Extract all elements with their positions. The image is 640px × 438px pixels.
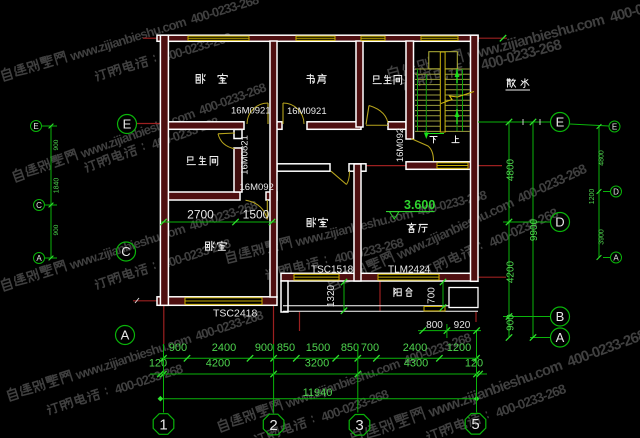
svg-text:1200: 1200 [447, 342, 471, 354]
svg-text:2: 2 [269, 417, 277, 434]
svg-text:E: E [123, 117, 132, 132]
svg-text:3900: 3900 [599, 229, 606, 245]
svg-text:3.600: 3.600 [404, 198, 435, 212]
svg-text:16M0921: 16M0921 [231, 106, 271, 117]
svg-text:C: C [36, 201, 42, 210]
svg-text:3200: 3200 [305, 358, 329, 370]
svg-text:900: 900 [506, 314, 517, 331]
svg-text:16M092: 16M092 [395, 128, 406, 162]
svg-text:1320: 1320 [326, 284, 337, 307]
svg-text:700: 700 [427, 287, 438, 304]
svg-text:TSC1518: TSC1518 [311, 265, 354, 276]
svg-text:920: 920 [454, 320, 471, 331]
svg-text:4800: 4800 [506, 158, 517, 181]
svg-text:2700: 2700 [187, 208, 214, 222]
svg-text:2400: 2400 [403, 342, 427, 354]
svg-text:16M0821: 16M0821 [240, 135, 251, 175]
svg-text:900: 900 [53, 139, 60, 150]
svg-text:4300: 4300 [404, 358, 428, 370]
svg-text:TLM2424: TLM2424 [388, 265, 431, 276]
svg-text:900: 900 [169, 342, 187, 354]
svg-text:4200: 4200 [506, 260, 517, 283]
svg-text:4800: 4800 [599, 150, 606, 166]
svg-text:D: D [555, 215, 564, 230]
svg-text:900: 900 [255, 342, 273, 354]
svg-text:850: 850 [277, 342, 295, 354]
svg-text:1200: 1200 [589, 189, 596, 205]
svg-text:900: 900 [53, 224, 60, 235]
svg-text:D: D [613, 187, 619, 196]
svg-text:700: 700 [361, 342, 379, 354]
svg-text:E: E [612, 122, 617, 131]
svg-text:1500: 1500 [306, 342, 330, 354]
svg-text:A: A [556, 330, 565, 345]
svg-text:A: A [613, 253, 619, 262]
svg-text:5: 5 [471, 416, 479, 433]
svg-text:4200: 4200 [206, 358, 230, 370]
svg-text:TSC2418: TSC2418 [213, 308, 258, 320]
svg-text:A: A [121, 328, 130, 343]
svg-text:1840: 1840 [54, 178, 61, 194]
svg-text:2400: 2400 [212, 342, 236, 354]
svg-text:800: 800 [426, 320, 443, 331]
svg-text:A: A [36, 254, 42, 263]
svg-text:16M0921: 16M0921 [287, 106, 327, 117]
svg-text:1: 1 [159, 416, 167, 433]
svg-text:9900: 9900 [529, 218, 540, 241]
svg-text:120: 120 [465, 358, 483, 370]
svg-text:C: C [121, 244, 130, 259]
svg-text:16M092: 16M092 [240, 182, 274, 193]
svg-text:11940: 11940 [303, 387, 333, 399]
svg-text:3: 3 [355, 417, 363, 434]
svg-text:120: 120 [149, 358, 167, 370]
svg-text:850: 850 [341, 342, 359, 354]
svg-text:B: B [556, 309, 565, 324]
svg-text:E: E [33, 122, 38, 131]
svg-text:E: E [556, 115, 565, 130]
svg-text:1500: 1500 [243, 208, 270, 222]
